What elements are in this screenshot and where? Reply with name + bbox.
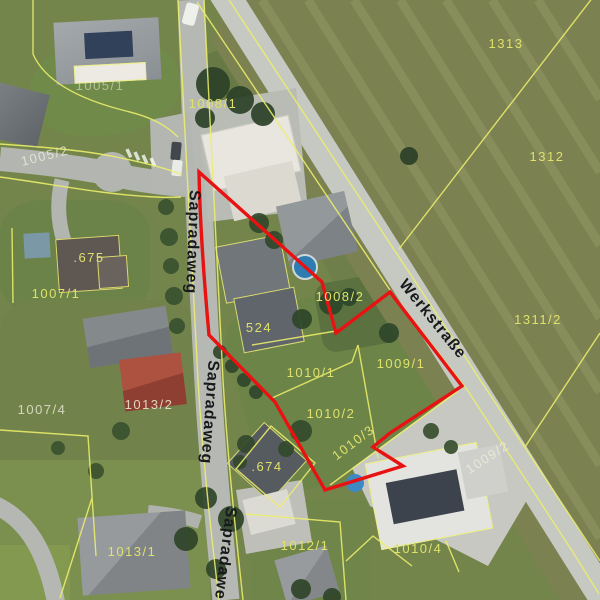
car-white-top	[181, 2, 199, 27]
car-dark-parked	[170, 142, 182, 161]
parcel-label-1005-1: 1005/1	[76, 78, 125, 93]
cars	[170, 2, 199, 177]
street-label-sapradaweg-mid: Sapradaweg	[197, 360, 221, 465]
parcel-label-1012-1: 1012/1	[281, 538, 330, 553]
parcel-label-1010-1: 1010/1	[287, 365, 336, 380]
parcel-labels: 1005/1 1005/2 1008/1 1313 1312 1311/2 .6…	[18, 36, 565, 559]
overlay-layer: 1005/1 1005/2 1008/1 1313 1312 1311/2 .6…	[0, 0, 600, 600]
parcel-label-1311-2: 1311/2	[514, 312, 562, 327]
parcel-label-1007-1: 1007/1	[32, 286, 81, 301]
parcel-label-1009-2: 1009/2	[463, 438, 512, 477]
parcel-label-1013-2: 1013/2	[125, 397, 174, 412]
building-label-675: .675	[73, 250, 104, 265]
crosswalk	[125, 148, 156, 167]
parcel-label-1009-1: 1009/1	[377, 356, 426, 371]
building-label-674: .674	[251, 459, 282, 474]
street-label-sapradaweg-top: Sapradaweg	[182, 190, 203, 295]
parcel-label-1313: 1313	[489, 36, 524, 51]
parcel-label-1010-2: 1010/2	[307, 406, 356, 421]
parcel-label-1010-3: 1010/3	[329, 422, 377, 463]
parcel-label-1312: 1312	[530, 149, 565, 164]
parcel-label-1010-4: 1010/4	[394, 541, 443, 556]
parcel-label-1008-1: 1008/1	[189, 96, 238, 111]
parcel-label-1013-1: 1013/1	[108, 544, 157, 559]
aerial-cadastral-map: 1005/1 1005/2 1008/1 1313 1312 1311/2 .6…	[0, 0, 600, 600]
building-label-524: 524	[246, 320, 272, 335]
parcel-label-1007-4: 1007/4	[18, 402, 67, 417]
parcel-label-1008-2: 1008/2	[316, 289, 365, 304]
